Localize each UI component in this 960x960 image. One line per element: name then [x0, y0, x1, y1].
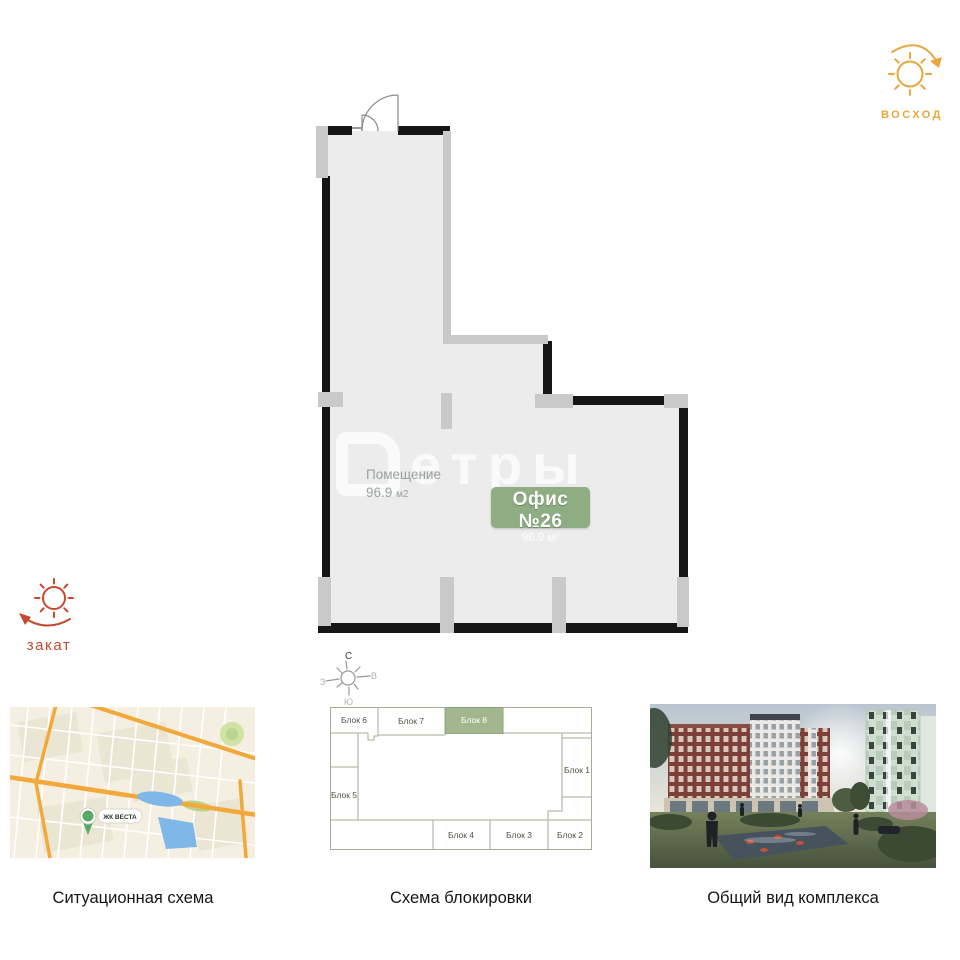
block-1-label: Блок 1 — [564, 765, 590, 775]
room-label: Помещение 96.9 м2 — [366, 466, 441, 501]
compass-east-label: В — [371, 671, 377, 681]
door-swing-icon — [362, 95, 398, 131]
compass-south-label: Ю — [344, 697, 353, 706]
compass-west-label: З — [320, 677, 325, 687]
situation-map-thumbnail[interactable]: ЖК ВЕСТА — [10, 707, 255, 858]
caption-overview: Общий вид комплекса — [668, 889, 918, 908]
block-3-label: Блок 3 — [506, 830, 532, 840]
block-2-label: Блок 2 — [557, 830, 583, 840]
sunset-indicator: закат — [10, 572, 88, 654]
block-6-label: Блок 6 — [341, 715, 367, 725]
office-badge-title: Офис №26 — [491, 489, 590, 533]
block-7-label: Блок 7 — [398, 716, 424, 726]
complex-render-image — [650, 704, 936, 868]
sunrise-label: ВОСХОД — [870, 109, 954, 121]
caption-situation: Ситуационная схема — [8, 889, 258, 908]
blocking-scheme-image — [330, 707, 592, 850]
compass-north-label: С — [345, 651, 352, 662]
caption-blocking: Схема блокировки — [336, 889, 586, 908]
map-pin-label: ЖК ВЕСТА — [102, 814, 137, 821]
sunrise-sun-icon — [870, 34, 954, 104]
block-4-label: Блок 4 — [448, 830, 474, 840]
office-badge[interactable]: Офис №26 96.9 м² — [491, 487, 590, 528]
sunset-label: закат — [10, 637, 88, 654]
office-badge-area: 96.9 м² — [491, 532, 590, 544]
block-5-label: Блок 5 — [331, 790, 357, 800]
page: ВОСХОД закат — [0, 0, 960, 960]
blocking-scheme-thumbnail[interactable]: Блок 6 Блок 7 Блок 8 Блок 1 Блок 2 Блок … — [330, 707, 592, 850]
compass-icon: С В З Ю — [320, 648, 378, 706]
situation-map-image: ЖК ВЕСТА — [10, 707, 255, 858]
sunrise-indicator: ВОСХОД — [870, 34, 954, 121]
floor-plan-drawing — [300, 90, 700, 650]
sunset-sun-icon — [10, 572, 88, 632]
complex-overview-thumbnail[interactable] — [650, 704, 936, 868]
block-8-label: Блок 8 — [461, 715, 487, 725]
